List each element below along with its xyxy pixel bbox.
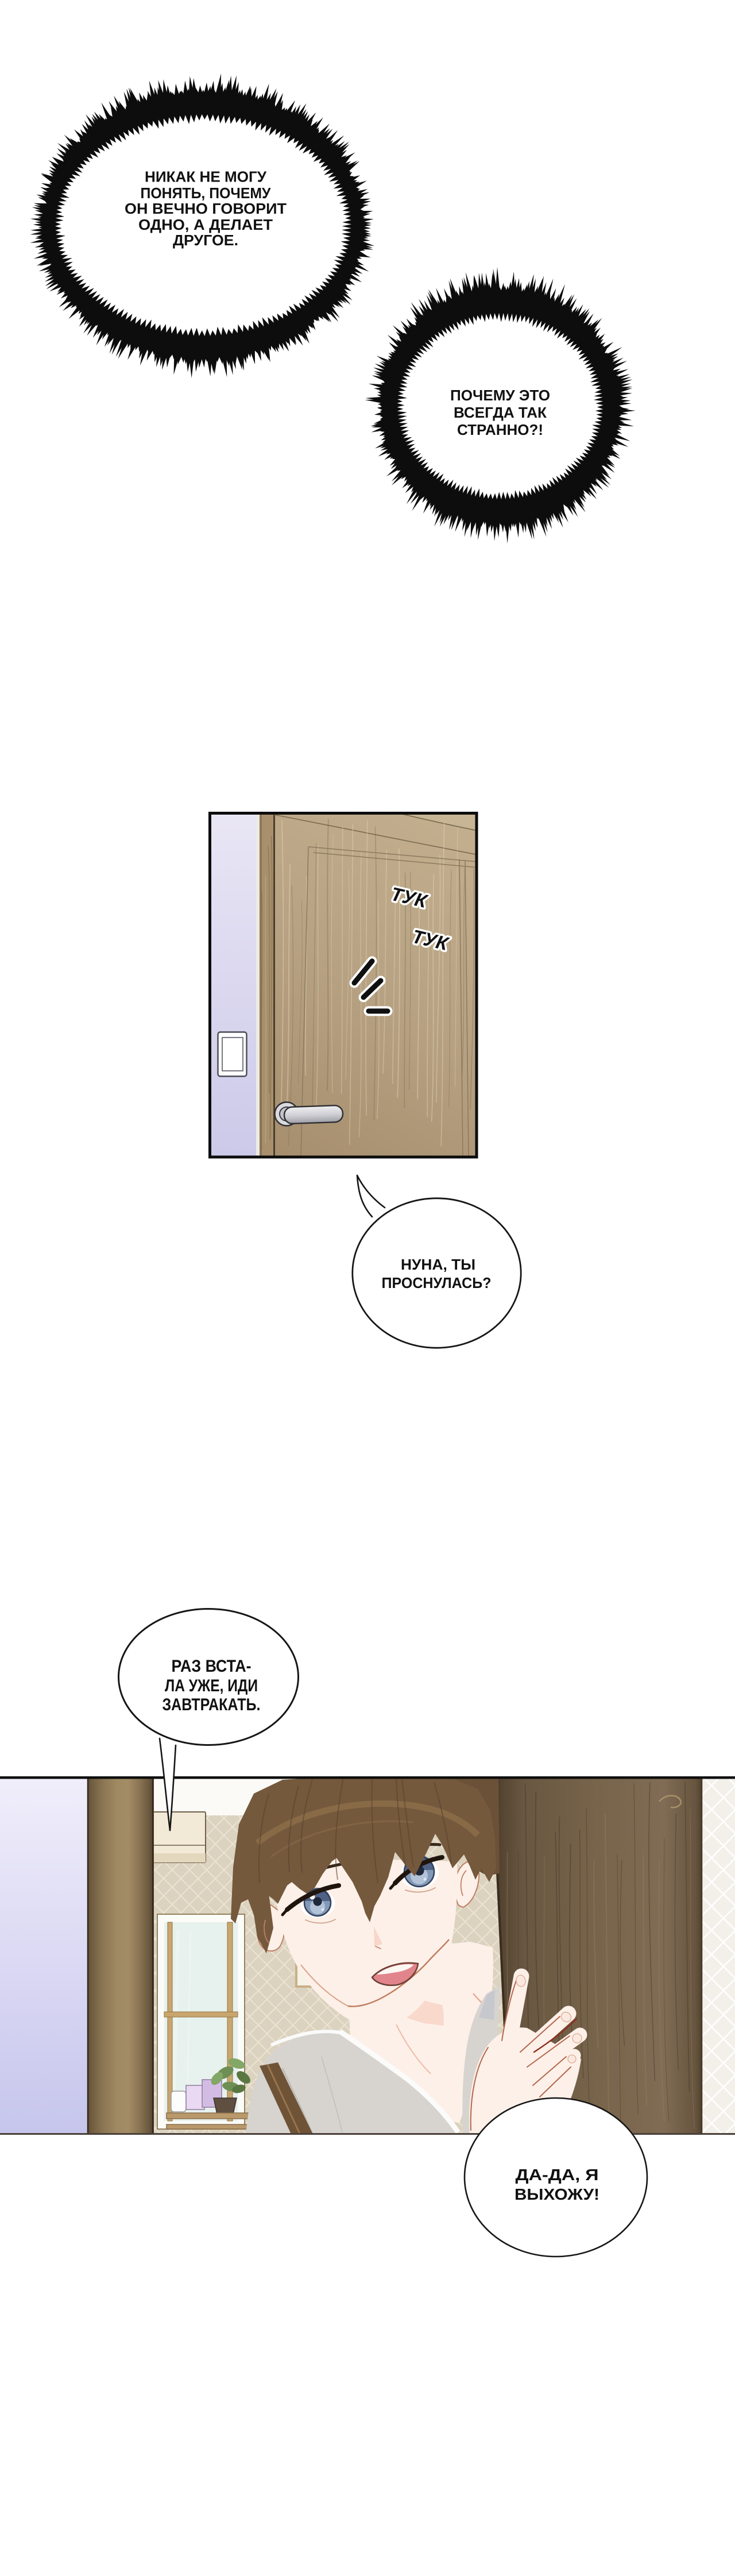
svg-text:ПОЧЕМУ ЭТО: ПОЧЕМУ ЭТО xyxy=(450,387,550,404)
svg-text:ВЫХОЖУ!: ВЫХОЖУ! xyxy=(514,2185,599,2203)
svg-text:ОДНО, А ДЕЛАЕТ: ОДНО, А ДЕЛАЕТ xyxy=(138,216,273,233)
svg-text:ПРОСНУЛАСЬ?: ПРОСНУЛАСЬ? xyxy=(382,1274,492,1291)
svg-text:ОН ВЕЧНО ГОВОРИТ: ОН ВЕЧНО ГОВОРИТ xyxy=(125,200,287,217)
svg-text:НУНА, ТЫ: НУНА, ТЫ xyxy=(401,1256,475,1273)
svg-text:ВСЕГДА ТАК: ВСЕГДА ТАК xyxy=(454,404,547,421)
svg-text:ДА-ДА, Я: ДА-ДА, Я xyxy=(516,2166,599,2184)
svg-text:СТРАННО?!: СТРАННО?! xyxy=(457,421,543,438)
svg-text:ЛА УЖЕ, ИДИ: ЛА УЖЕ, ИДИ xyxy=(165,1676,258,1695)
svg-text:ДРУГОЕ.: ДРУГОЕ. xyxy=(173,232,238,249)
svg-text:НИКАК НЕ МОГУ: НИКАК НЕ МОГУ xyxy=(145,168,267,186)
svg-text:ЗАВТРАКАТЬ.: ЗАВТРАКАТЬ. xyxy=(163,1695,261,1714)
svg-text:РАЗ ВСТА-: РАЗ ВСТА- xyxy=(172,1657,252,1676)
svg-text:ПОНЯТЬ, ПОЧЕМУ: ПОНЯТЬ, ПОЧЕМУ xyxy=(141,184,272,202)
